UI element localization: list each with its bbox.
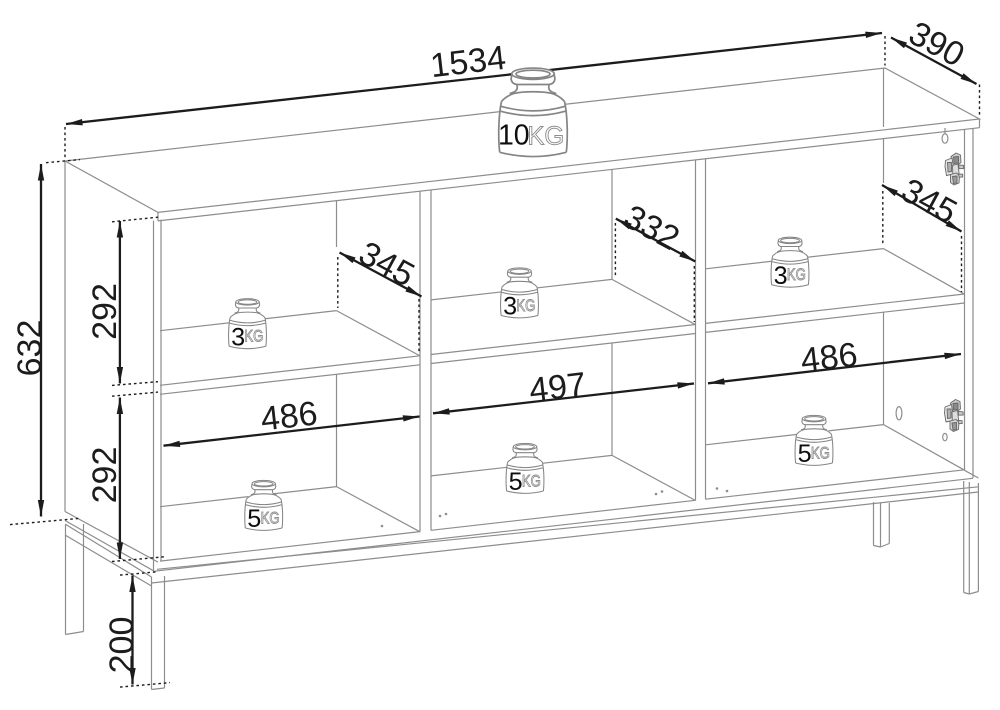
svg-text:KG: KG <box>527 122 564 150</box>
svg-text:KG: KG <box>522 471 541 490</box>
svg-text:632: 632 <box>11 320 49 377</box>
svg-text:5: 5 <box>509 468 523 496</box>
svg-text:KG: KG <box>244 327 263 346</box>
svg-text:KG: KG <box>516 296 535 315</box>
svg-text:KG: KG <box>261 508 280 527</box>
svg-text:3: 3 <box>231 323 245 351</box>
svg-text:486: 486 <box>259 394 320 438</box>
svg-text:486: 486 <box>799 336 860 380</box>
svg-text:3: 3 <box>503 293 517 321</box>
svg-text:497: 497 <box>527 365 588 409</box>
svg-text:292: 292 <box>86 283 124 340</box>
svg-text:200: 200 <box>103 617 141 674</box>
svg-text:3: 3 <box>774 262 788 290</box>
svg-text:5: 5 <box>247 505 261 533</box>
svg-text:KG: KG <box>811 443 830 462</box>
svg-text:5: 5 <box>798 440 812 468</box>
svg-text:10: 10 <box>498 119 530 151</box>
svg-text:KG: KG <box>787 265 806 284</box>
svg-text:292: 292 <box>86 447 124 504</box>
